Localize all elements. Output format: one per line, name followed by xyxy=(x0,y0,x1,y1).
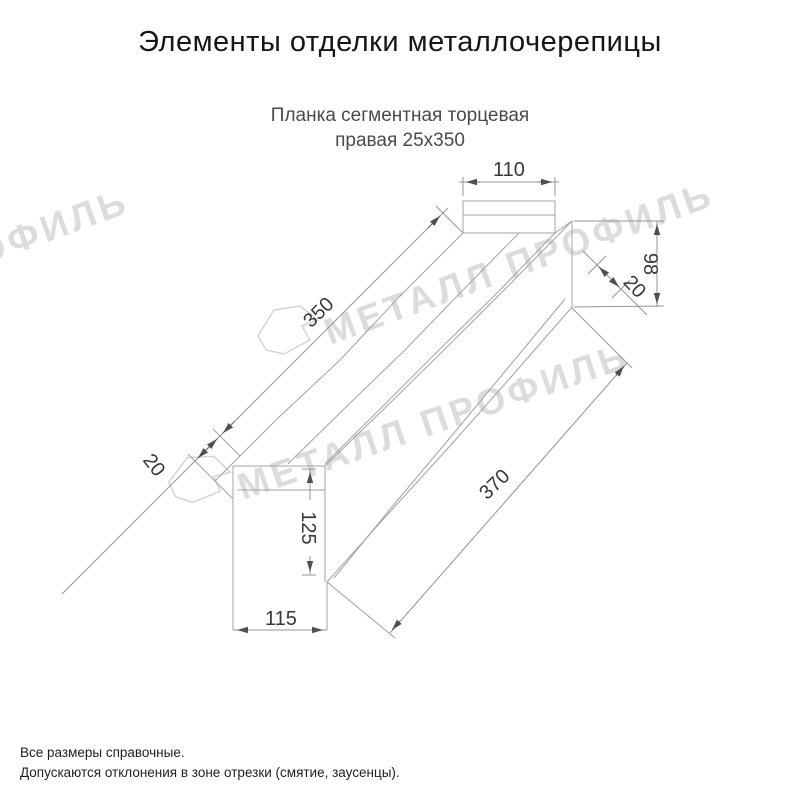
top-tab xyxy=(463,201,555,233)
dim-115: 115 xyxy=(233,608,327,630)
dim-label-right-height: 98 xyxy=(639,253,661,275)
dim-350-and-left-20: 350 20 xyxy=(62,206,463,594)
dim-label-right-flange: 20 xyxy=(619,271,650,302)
dim-110: 110 xyxy=(459,159,559,196)
technical-drawing: МЕТАЛЛ ПРОФИЛЬ МЕТАЛЛ ПРОФИЛЬ МЕТАЛЛ ПРО… xyxy=(0,0,800,800)
watermark-text-partial: МЕТАЛЛ ПРОФИЛЬ xyxy=(0,180,134,359)
dim-label-top-width: 110 xyxy=(493,159,525,181)
dim-label-left-height: 125 xyxy=(297,511,319,544)
footnotes: Все размеры справочные. Допускаются откл… xyxy=(20,743,400,783)
dim-label-left-flange: 20 xyxy=(138,450,169,481)
footnote-2: Допускаются отклонения в зоне отрезки (с… xyxy=(20,763,400,783)
footnote-1: Все размеры справочные. xyxy=(20,743,400,763)
watermark-layer: МЕТАЛЛ ПРОФИЛЬ МЕТАЛЛ ПРОФИЛЬ МЕТАЛЛ ПРО… xyxy=(0,173,719,507)
drawing-sheet: Элементы отделки металлочерепицы Планка … xyxy=(0,0,800,800)
dim-label-bottom-width: 115 xyxy=(265,608,297,630)
